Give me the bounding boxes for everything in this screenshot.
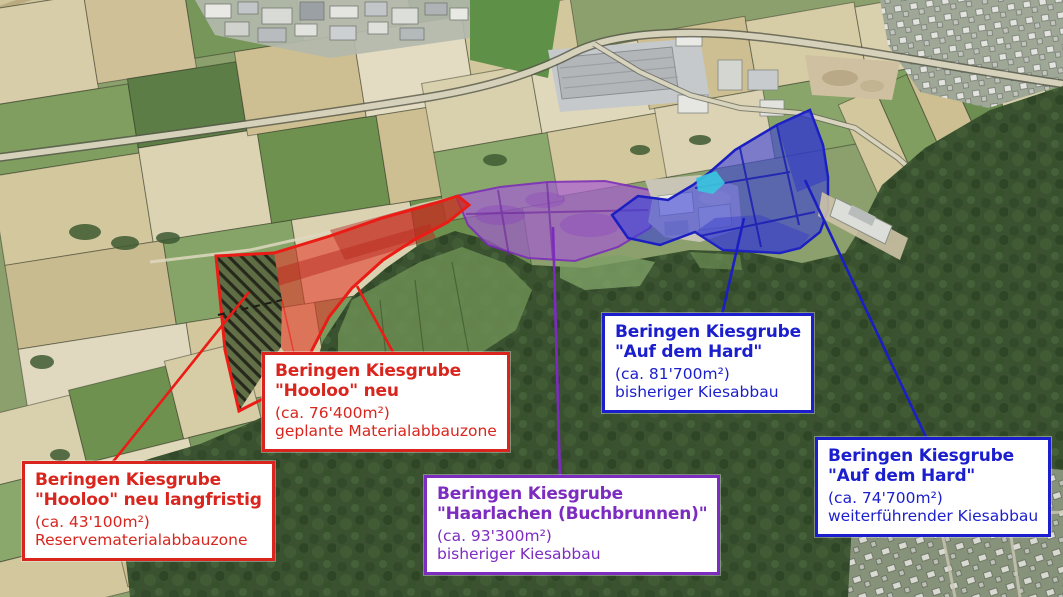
- zone-label-hooloo-neu-langfristig: Beringen Kiesgrube "Hooloo" neu langfris…: [22, 461, 275, 561]
- label-area: (ca. 43'100m²): [35, 513, 262, 531]
- label-area: (ca. 76'400m²): [275, 404, 497, 422]
- label-area: (ca. 74'700m²): [828, 489, 1038, 507]
- label-subtitle: "Hooloo" neu langfristig: [35, 490, 262, 510]
- aerial-map-screenshot: Beringen Kiesgrube "Hooloo" neu langfris…: [0, 0, 1063, 597]
- label-subtitle: "Haarlachen (Buchbrunnen)": [437, 504, 707, 524]
- label-title: Beringen Kiesgrube: [275, 361, 497, 381]
- label-type: bisheriger Kiesabbau: [437, 545, 707, 563]
- label-area: (ca. 93'300m²): [437, 527, 707, 545]
- zone-label-auf-dem-hard-bisher: Beringen Kiesgrube "Auf dem Hard" (ca. 8…: [602, 313, 814, 413]
- label-type: bisheriger Kiesabbau: [615, 383, 801, 401]
- zone-label-auf-dem-hard-weiter: Beringen Kiesgrube "Auf dem Hard" (ca. 7…: [815, 437, 1051, 537]
- label-subtitle: "Auf dem Hard": [615, 342, 801, 362]
- zone-label-haarlachen: Beringen Kiesgrube "Haarlachen (Buchbrun…: [424, 475, 720, 575]
- label-subtitle: "Auf dem Hard": [828, 466, 1038, 486]
- label-area: (ca. 81'700m²): [615, 365, 801, 383]
- zone-label-hooloo-neu: Beringen Kiesgrube "Hooloo" neu (ca. 76'…: [262, 352, 510, 452]
- label-title: Beringen Kiesgrube: [828, 446, 1038, 466]
- label-title: Beringen Kiesgrube: [437, 484, 707, 504]
- label-subtitle: "Hooloo" neu: [275, 381, 497, 401]
- label-title: Beringen Kiesgrube: [35, 470, 262, 490]
- label-type: geplante Materialabbauzone: [275, 422, 497, 440]
- label-title: Beringen Kiesgrube: [615, 322, 801, 342]
- label-type: Reservematerialabbauzone: [35, 531, 262, 549]
- label-type: weiterführender Kiesabbau: [828, 507, 1038, 525]
